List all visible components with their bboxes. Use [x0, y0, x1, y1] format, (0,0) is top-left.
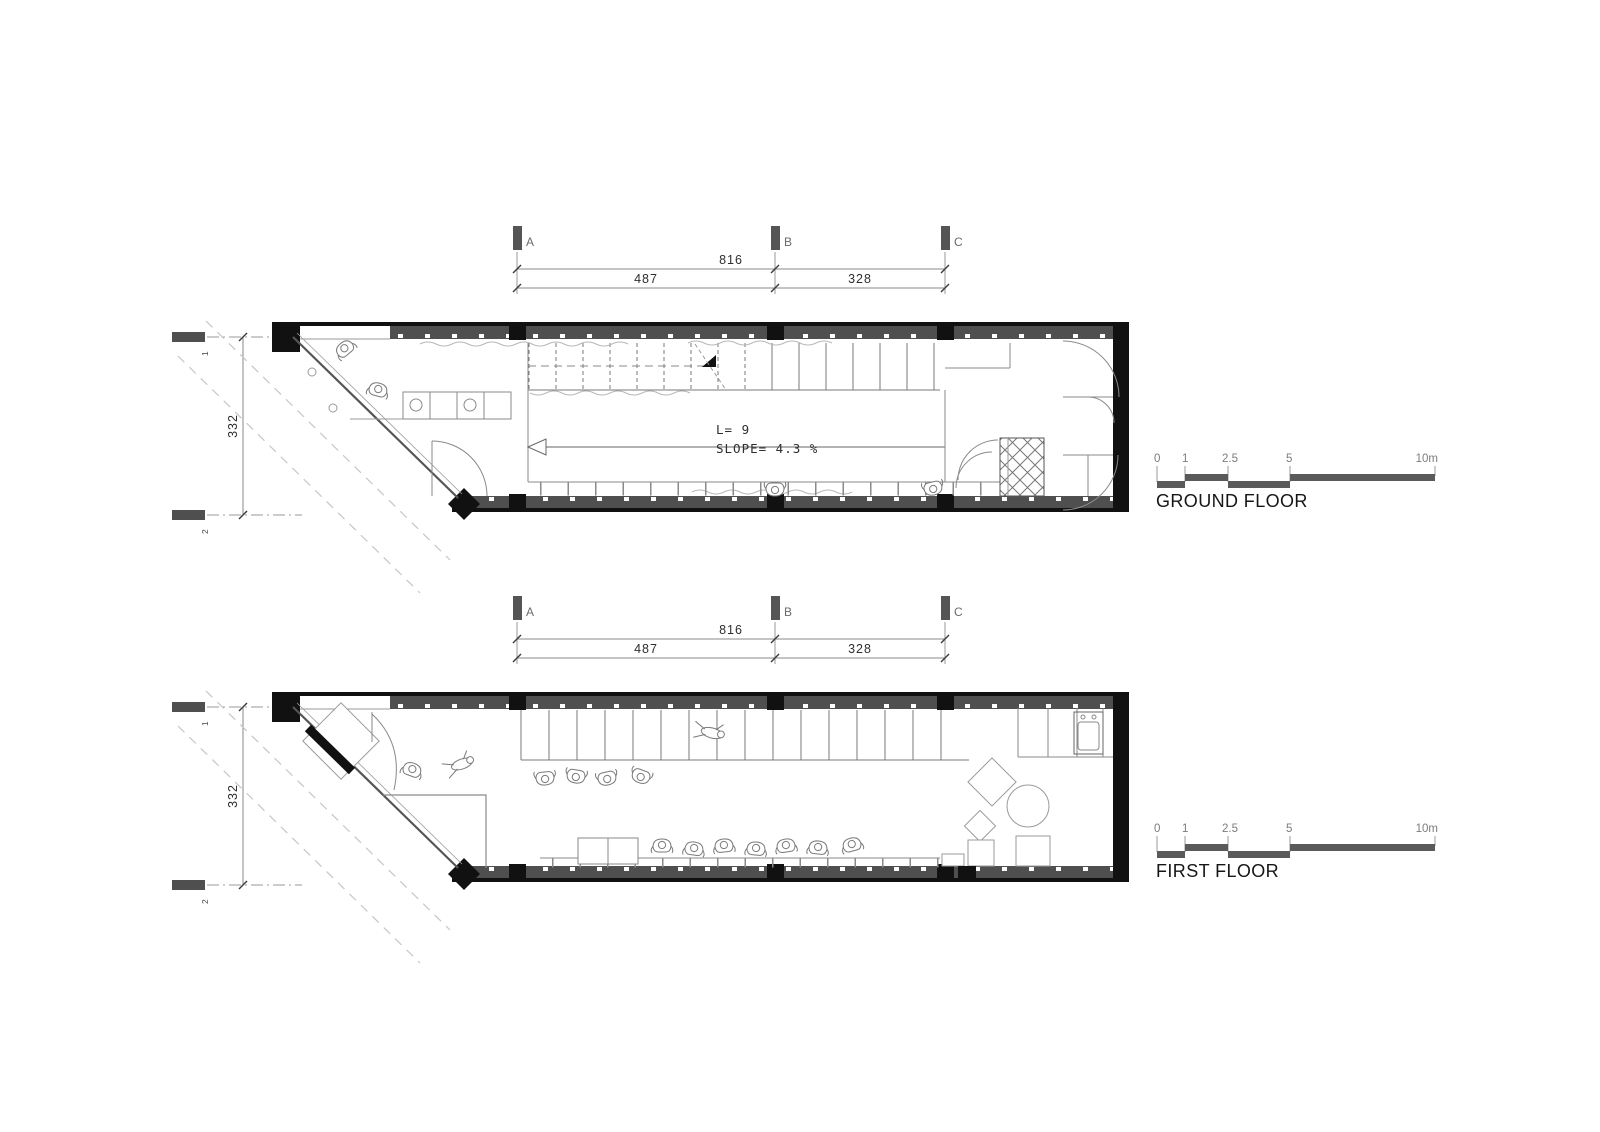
lounge-furniture: [942, 758, 1050, 866]
person: [682, 841, 705, 858]
person: [745, 841, 768, 857]
ground-floor-label: GROUND FLOOR: [1156, 491, 1308, 511]
person: [774, 838, 797, 855]
floor-plan-sheet: A B C 816 48: [0, 0, 1600, 1132]
person: [595, 769, 619, 787]
table: [578, 838, 638, 864]
door-swing: [372, 714, 396, 790]
first-floor-label: FIRST FLOOR: [1156, 861, 1279, 881]
sink-icon: [1078, 722, 1099, 750]
void-guardrail: [383, 795, 486, 868]
person: [399, 760, 424, 781]
ground-floor-plan: L= 9 SLOPE= 4.3 %: [308, 337, 1119, 510]
stool: [308, 368, 316, 376]
wc-area: [945, 341, 1119, 510]
first-floor-plan: [303, 703, 1113, 882]
entrance-door: [432, 441, 487, 496]
annotation-block-first: [172, 596, 1438, 963]
person: [628, 766, 653, 787]
balustrade: [521, 710, 941, 760]
person: [651, 839, 673, 853]
person: [534, 770, 557, 786]
person: [840, 835, 864, 854]
stool: [329, 404, 337, 412]
stair-landing: [303, 703, 379, 779]
ramp-treads-solid: [772, 343, 934, 390]
person-walking: [440, 749, 476, 779]
ramp-length-note: L= 9: [716, 422, 750, 437]
person: [764, 482, 786, 496]
annotation-block-ground: [172, 226, 1438, 593]
person: [366, 380, 390, 399]
person: [807, 840, 830, 856]
ramp-slope-note: SLOPE= 4.3 %: [716, 441, 818, 456]
page: { "title": "Floor plans drawing", "color…: [0, 0, 1600, 1132]
person-walking: [691, 717, 727, 744]
person: [564, 767, 588, 785]
kitchen-counter: [1018, 708, 1113, 757]
person: [332, 337, 358, 362]
person: [713, 838, 736, 854]
